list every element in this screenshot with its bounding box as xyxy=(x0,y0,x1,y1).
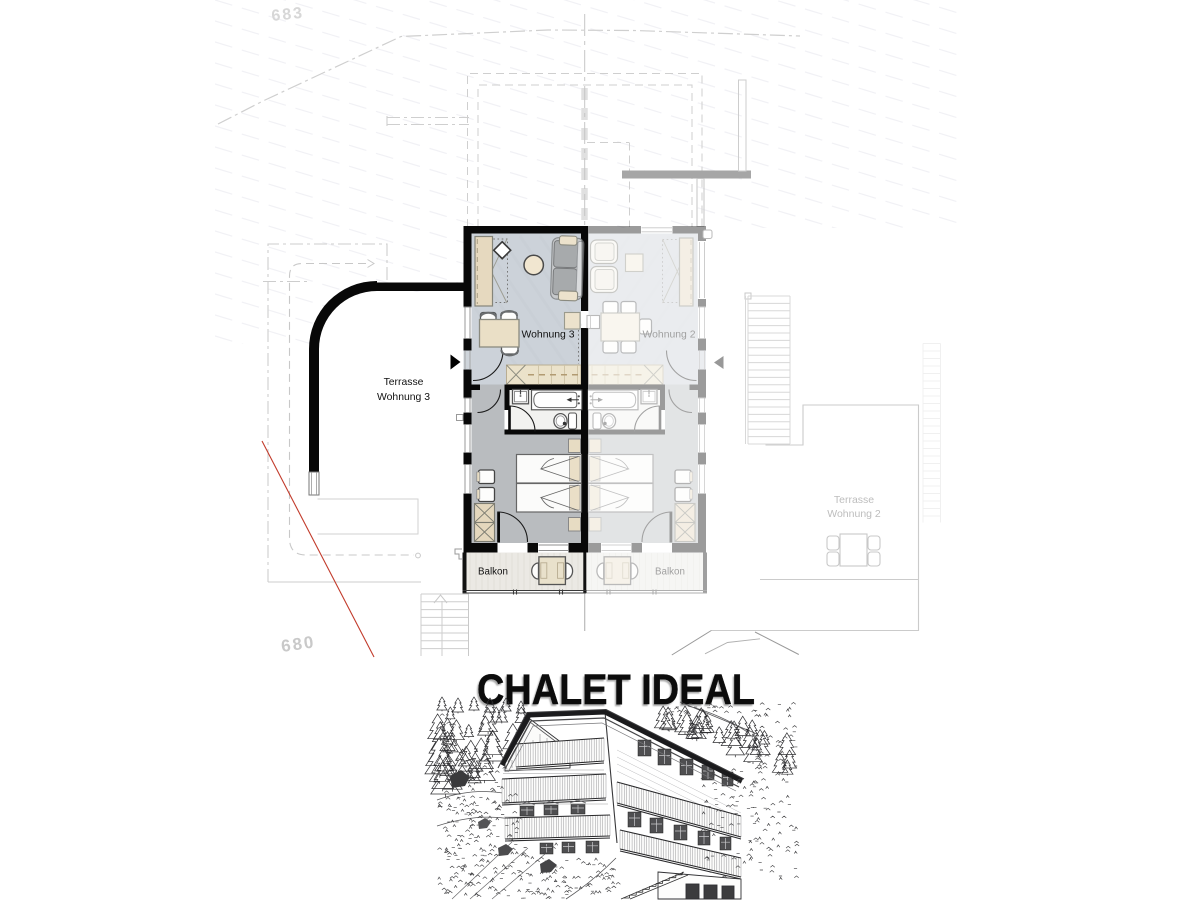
svg-text:Balkon: Balkon xyxy=(478,567,508,578)
svg-text:Wohnung 3: Wohnung 3 xyxy=(522,330,575,341)
svg-text:680: 680 xyxy=(280,632,317,656)
svg-text:Balkon: Balkon xyxy=(655,567,685,578)
svg-text:Wohnung 3: Wohnung 3 xyxy=(377,392,430,403)
svg-text:Terrasse: Terrasse xyxy=(834,494,874,506)
svg-text:Wohnung 2: Wohnung 2 xyxy=(827,508,881,520)
svg-text:Wohnung 2: Wohnung 2 xyxy=(643,330,696,341)
svg-text:Terrasse: Terrasse xyxy=(384,377,424,388)
svg-text:683: 683 xyxy=(271,5,305,25)
